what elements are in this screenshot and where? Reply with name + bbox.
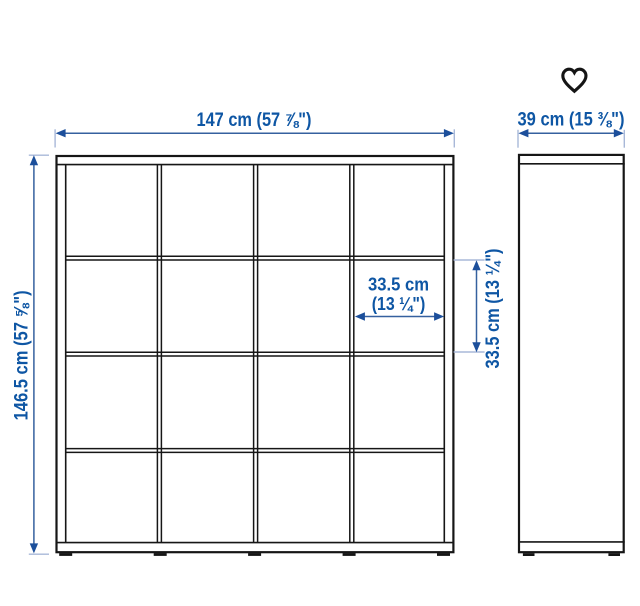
svg-text:39 cm (15 ⅜"): 39 cm (15 ⅜") — [518, 110, 625, 131]
svg-text:33.5 cm: 33.5 cm — [368, 275, 429, 295]
svg-text:33.5 cm (13 ¼"): 33.5 cm (13 ¼") — [483, 249, 504, 369]
svg-text:146.5 cm (57 ⅝"): 146.5 cm (57 ⅝") — [11, 290, 32, 420]
svg-text:(13 ¼"): (13 ¼") — [372, 294, 426, 314]
svg-text:147 cm (57 ⅞"): 147 cm (57 ⅞") — [197, 110, 312, 131]
